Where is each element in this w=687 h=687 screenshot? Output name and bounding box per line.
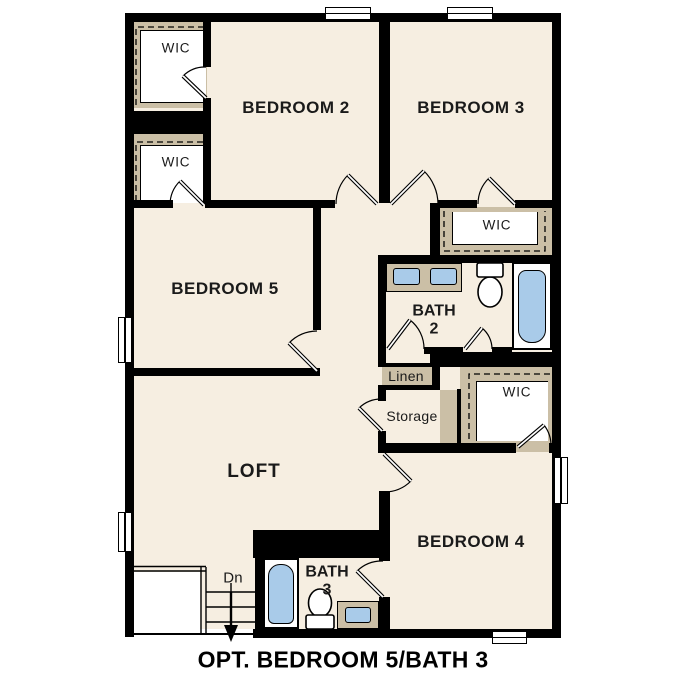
bath3-bathtub-icon [268,564,294,624]
bath2-label: BATH 2 [412,303,455,340]
window-mullion [493,637,526,638]
bedroom3-label: BEDROOM 3 [417,98,524,118]
wic-label: WIC [162,41,191,56]
window [325,7,371,20]
wall-band [430,352,552,367]
wall-chase [131,111,211,134]
stairs-down-label: Dn [223,570,243,587]
wall-hall [515,200,552,208]
window [118,512,132,552]
bath3-label-line2: 3 [305,582,348,600]
window-mullion [326,13,370,14]
bedroom5-label: BEDROOM 5 [171,279,278,299]
wall-linen-bottom [378,385,440,390]
wall-bed4-west [379,597,390,629]
window-mullion [124,513,125,551]
window [492,631,527,644]
stair-opening [134,572,200,633]
wall-wic-right [203,22,211,67]
window [118,317,132,363]
wall-bath2-west [378,255,386,352]
bath2-sink-icon [393,268,420,285]
loft-label: LOFT [227,461,281,483]
wall-bed5-east [313,208,321,330]
bath2-label-line2: 2 [412,321,455,339]
wall-linen-top [378,363,440,367]
wall-storage-west [378,385,386,401]
bath2-label-line1: BATH [412,303,455,321]
wall-bath3-top [253,530,390,558]
bath2-bathtub-icon [518,270,546,343]
window [554,457,568,504]
wall-hall [438,200,477,208]
wall-hall [205,200,335,208]
wall-storage-divider [457,389,461,443]
window-mullion [560,458,561,503]
wic-label: WIC [503,385,532,400]
bath2-sink-icon [430,268,457,285]
wall-right [552,13,561,637]
wall-wic4-south [460,443,516,453]
bedroom4-label: BEDROOM 4 [417,532,524,552]
bath3-sink-icon [345,607,371,623]
window-mullion [448,13,492,14]
wall-wic4-south [549,443,552,453]
linen-label: Linen [388,368,424,384]
wic-label: WIC [483,218,512,233]
floor-plan: BEDROOM 2 BEDROOM 3 BEDROOM 5 LOFT BEDRO… [0,0,687,687]
wall-bed2-bed3 [379,22,390,203]
wall-bath3-west [255,558,263,629]
wall-storage-west [378,431,386,443]
plan-caption: OPT. BEDROOM 5/BATH 3 [198,647,489,674]
bath3-label: BATH 3 [305,564,348,601]
wic-label: WIC [162,155,191,170]
storage-label: Storage [386,408,437,424]
stair-bottom-line [134,633,255,635]
wall-bed5-loft [134,368,320,376]
storage-wall-poche [440,390,457,443]
bath3-label-line1: BATH [305,564,348,582]
wall-bed4-north [378,443,460,453]
wall-wic3-west [430,203,440,263]
window-mullion [124,318,125,362]
bedroom2-label: BEDROOM 2 [242,98,349,118]
wall-hall [134,200,173,208]
window [447,7,493,20]
